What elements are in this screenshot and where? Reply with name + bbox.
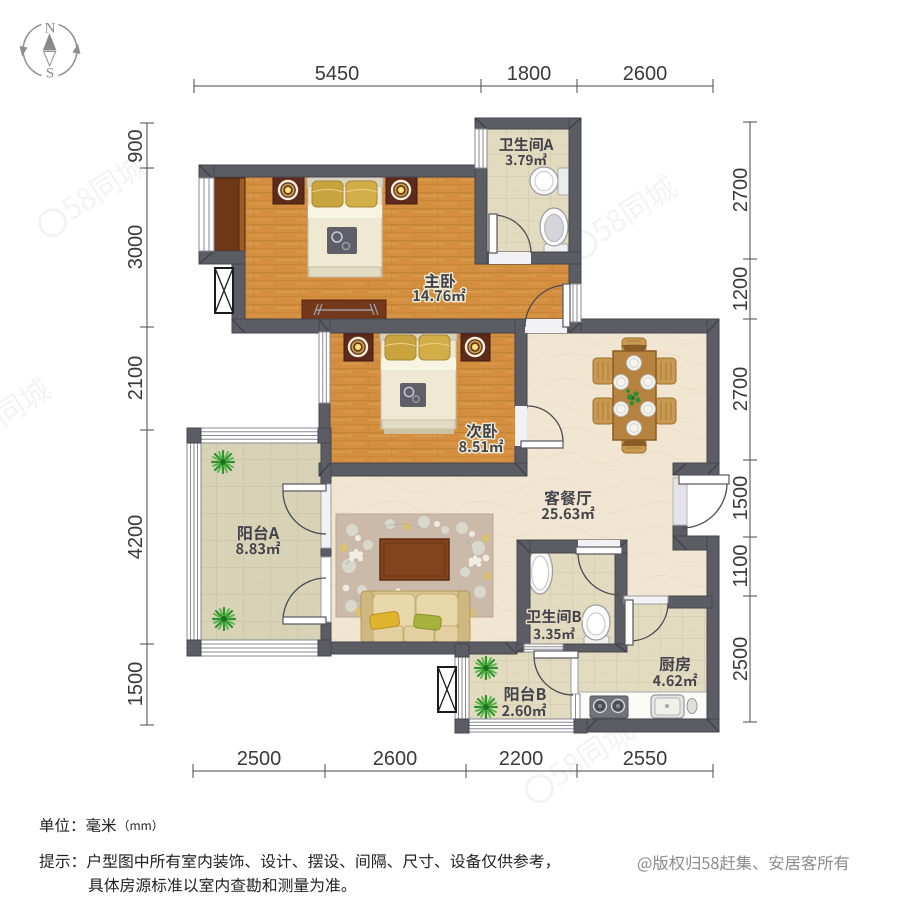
svg-text:2200: 2200 — [499, 748, 544, 770]
svg-text:2550: 2550 — [623, 748, 668, 770]
svg-text:1500: 1500 — [730, 476, 752, 521]
svg-text:2700: 2700 — [730, 367, 752, 412]
svg-text:5450: 5450 — [315, 63, 360, 85]
svg-text:1800: 1800 — [507, 63, 552, 85]
svg-text:1200: 1200 — [730, 267, 752, 312]
svg-text:2600: 2600 — [623, 63, 668, 85]
svg-text:2100: 2100 — [125, 356, 147, 401]
svg-text:2700: 2700 — [730, 168, 752, 213]
svg-text:N: N — [45, 21, 56, 37]
svg-text:900: 900 — [125, 129, 147, 162]
svg-text:1500: 1500 — [125, 662, 147, 707]
svg-text:3000: 3000 — [125, 225, 147, 270]
svg-text:4200: 4200 — [125, 515, 147, 560]
svg-text:S: S — [46, 66, 54, 82]
svg-text:2600: 2600 — [373, 748, 418, 770]
svg-text:2500: 2500 — [237, 748, 282, 770]
svg-text:1100: 1100 — [730, 544, 752, 587]
svg-text:2500: 2500 — [730, 637, 752, 682]
